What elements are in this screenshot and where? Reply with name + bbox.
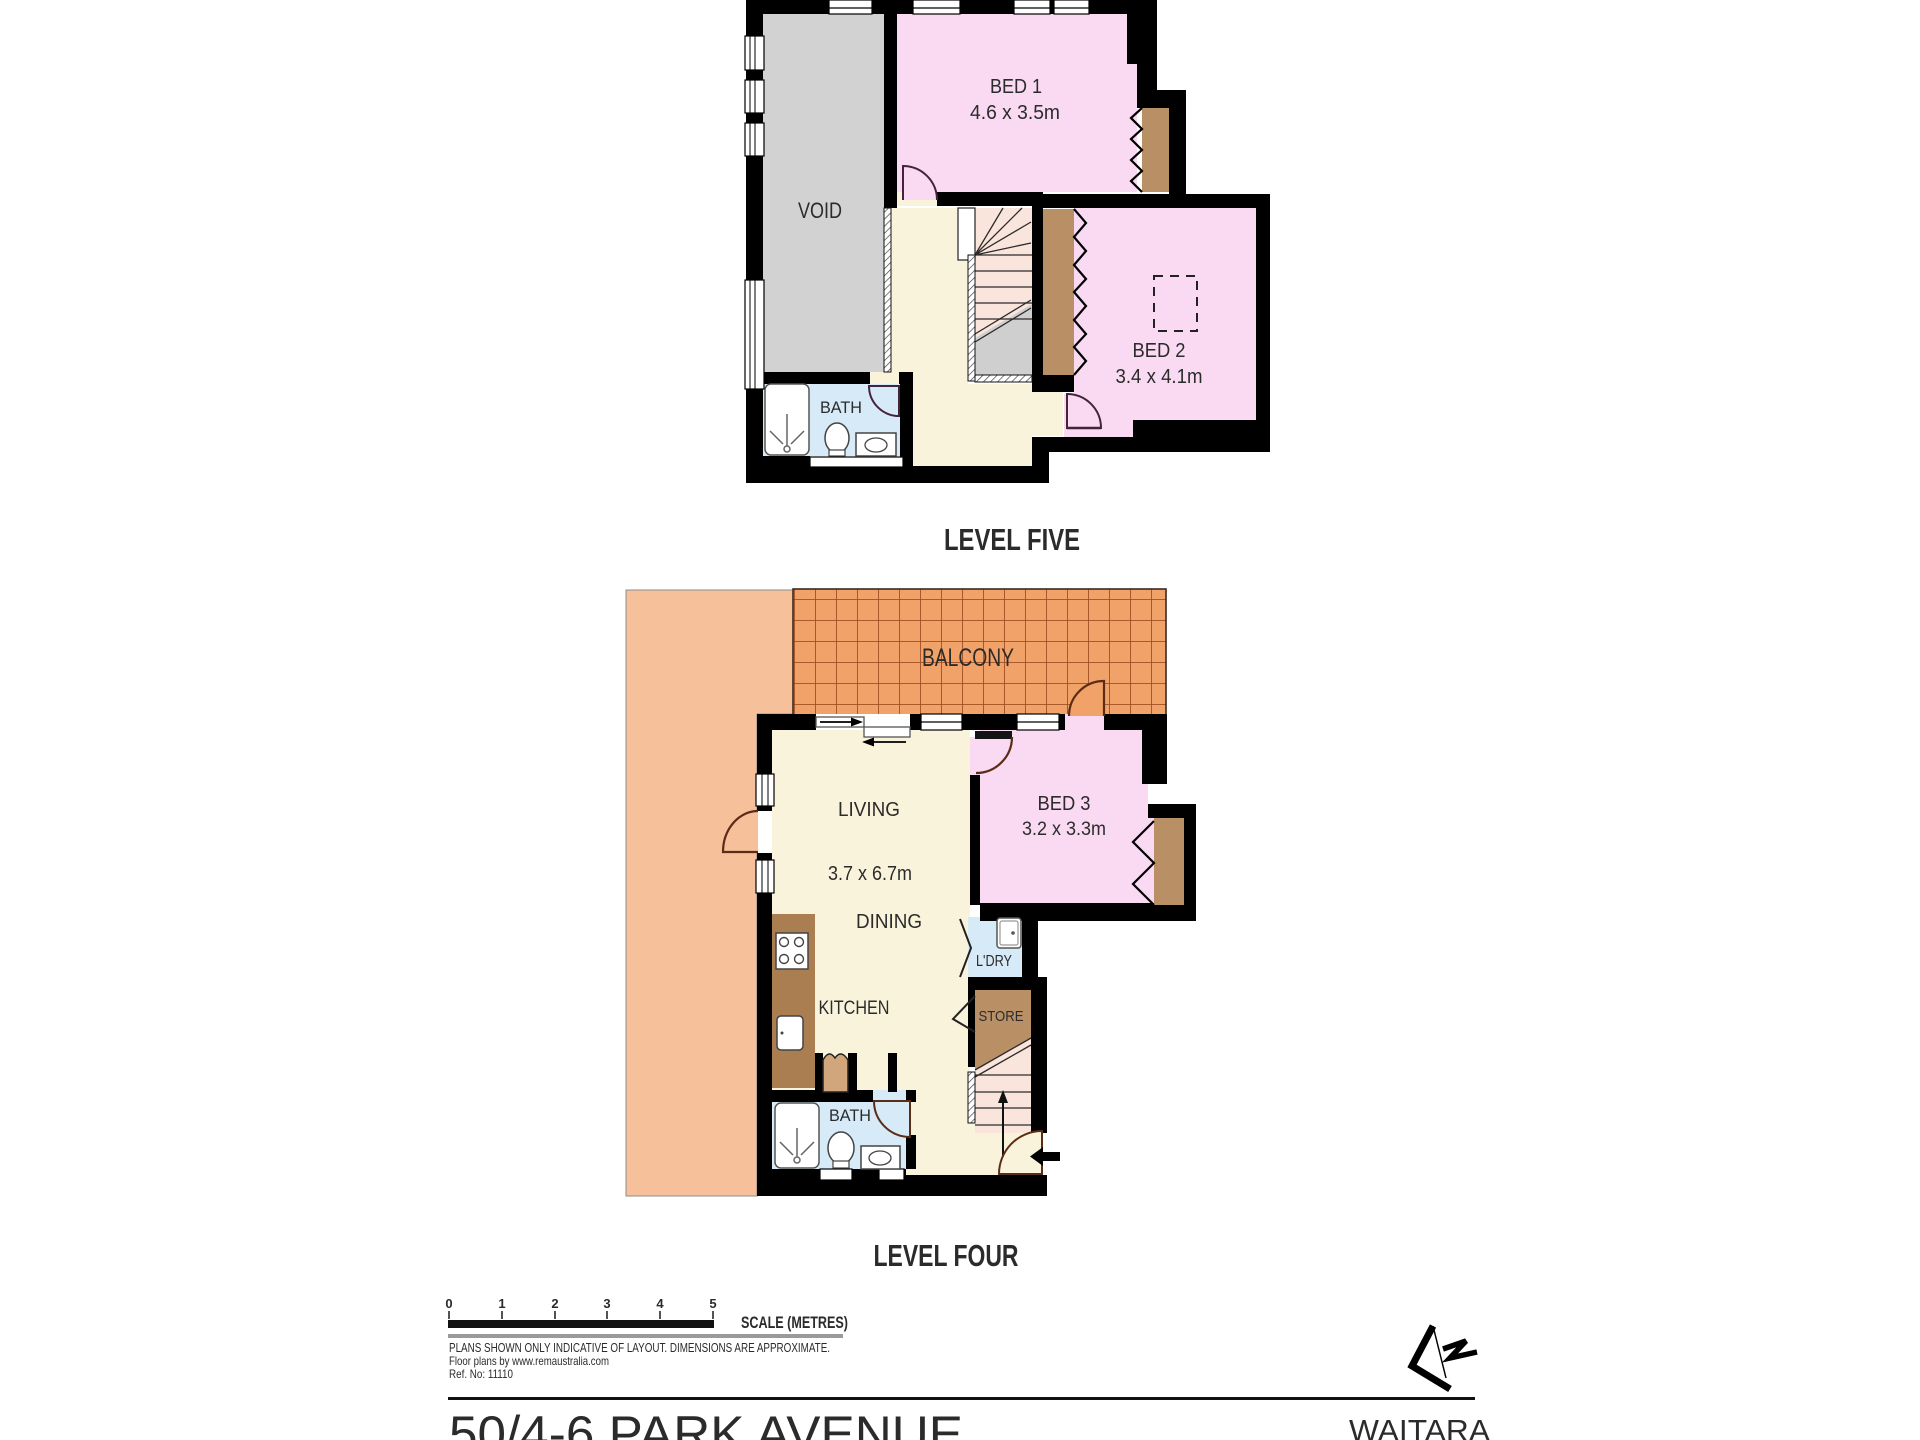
svg-text:LEVEL FOUR: LEVEL FOUR xyxy=(874,1238,1019,1273)
svg-text:BALCONY: BALCONY xyxy=(922,644,1014,672)
svg-text:STORE: STORE xyxy=(979,1008,1024,1025)
svg-text:0: 0 xyxy=(445,1296,452,1311)
svg-text:BATH: BATH xyxy=(820,398,862,417)
svg-text:WAITARA: WAITARA xyxy=(1349,1413,1490,1440)
svg-text:DINING: DINING xyxy=(856,911,922,933)
svg-text:2: 2 xyxy=(551,1296,558,1311)
svg-text:BED 2: BED 2 xyxy=(1133,340,1186,362)
svg-text:BED 1: BED 1 xyxy=(990,76,1042,98)
svg-text:LIVING: LIVING xyxy=(838,799,900,821)
svg-text:LEVEL FIVE: LEVEL FIVE xyxy=(944,522,1080,557)
svg-text:3.2 x 3.3m: 3.2 x 3.3m xyxy=(1022,819,1106,840)
svg-text:1: 1 xyxy=(498,1296,505,1311)
svg-text:L'DRY: L'DRY xyxy=(976,953,1012,970)
svg-text:5: 5 xyxy=(709,1296,716,1311)
svg-text:BED 3: BED 3 xyxy=(1038,793,1091,815)
svg-text:50/4-6 PARK AVENUE: 50/4-6 PARK AVENUE xyxy=(449,1406,963,1440)
svg-text:BATH: BATH xyxy=(829,1106,871,1125)
svg-text:VOID: VOID xyxy=(798,198,842,223)
svg-text:KITCHEN: KITCHEN xyxy=(819,998,890,1019)
svg-text:PLANS SHOWN ONLY INDICATIVE OF: PLANS SHOWN ONLY INDICATIVE OF LAYOUT. D… xyxy=(449,1341,830,1355)
svg-text:3.7 x 6.7m: 3.7 x 6.7m xyxy=(828,863,912,885)
svg-text:SCALE (METRES): SCALE (METRES) xyxy=(741,1313,848,1332)
svg-text:4: 4 xyxy=(656,1296,664,1311)
svg-text:4.6 x 3.5m: 4.6 x 3.5m xyxy=(970,102,1060,124)
svg-text:3.4 x 4.1m: 3.4 x 4.1m xyxy=(1116,366,1203,388)
svg-text:3: 3 xyxy=(603,1296,610,1311)
svg-text:Ref. No: 11110: Ref. No: 11110 xyxy=(449,1367,513,1381)
svg-text:Floor plans by www.remaustrali: Floor plans by www.remaustralia.com xyxy=(449,1354,609,1368)
